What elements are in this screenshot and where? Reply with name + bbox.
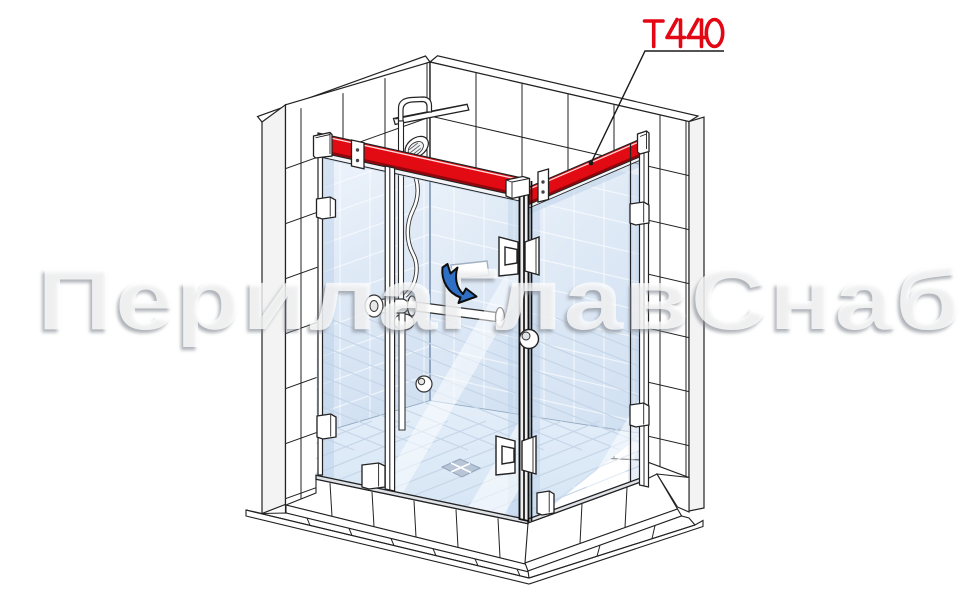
svg-text:ПерилаГлавСнаб: ПерилаГлавСнаб <box>38 251 963 348</box>
